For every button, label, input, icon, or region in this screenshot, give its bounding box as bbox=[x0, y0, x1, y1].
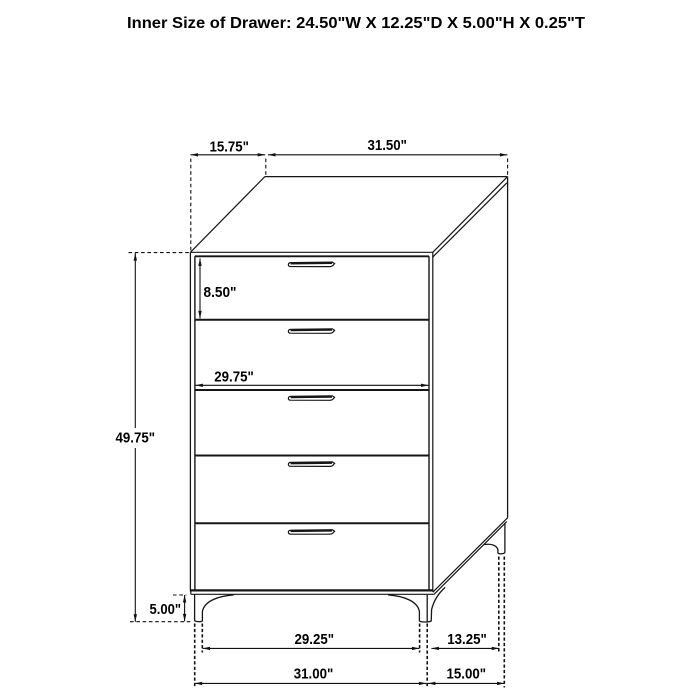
svg-text:5.00": 5.00" bbox=[150, 601, 182, 618]
svg-text:31.50": 31.50" bbox=[367, 137, 407, 154]
svg-text:15.00": 15.00" bbox=[447, 665, 487, 682]
svg-text:29.75": 29.75" bbox=[214, 369, 254, 386]
svg-text:15.75": 15.75" bbox=[209, 138, 249, 155]
svg-text:13.25": 13.25" bbox=[447, 631, 487, 648]
svg-text:Inner Size of Drawer: 24.50"W: Inner Size of Drawer: 24.50"W X 12.25"D … bbox=[127, 15, 585, 32]
svg-text:8.50": 8.50" bbox=[204, 284, 237, 301]
svg-text:29.25": 29.25" bbox=[295, 631, 335, 648]
svg-text:49.75": 49.75" bbox=[116, 430, 156, 447]
svg-text:31.00": 31.00" bbox=[294, 665, 334, 682]
